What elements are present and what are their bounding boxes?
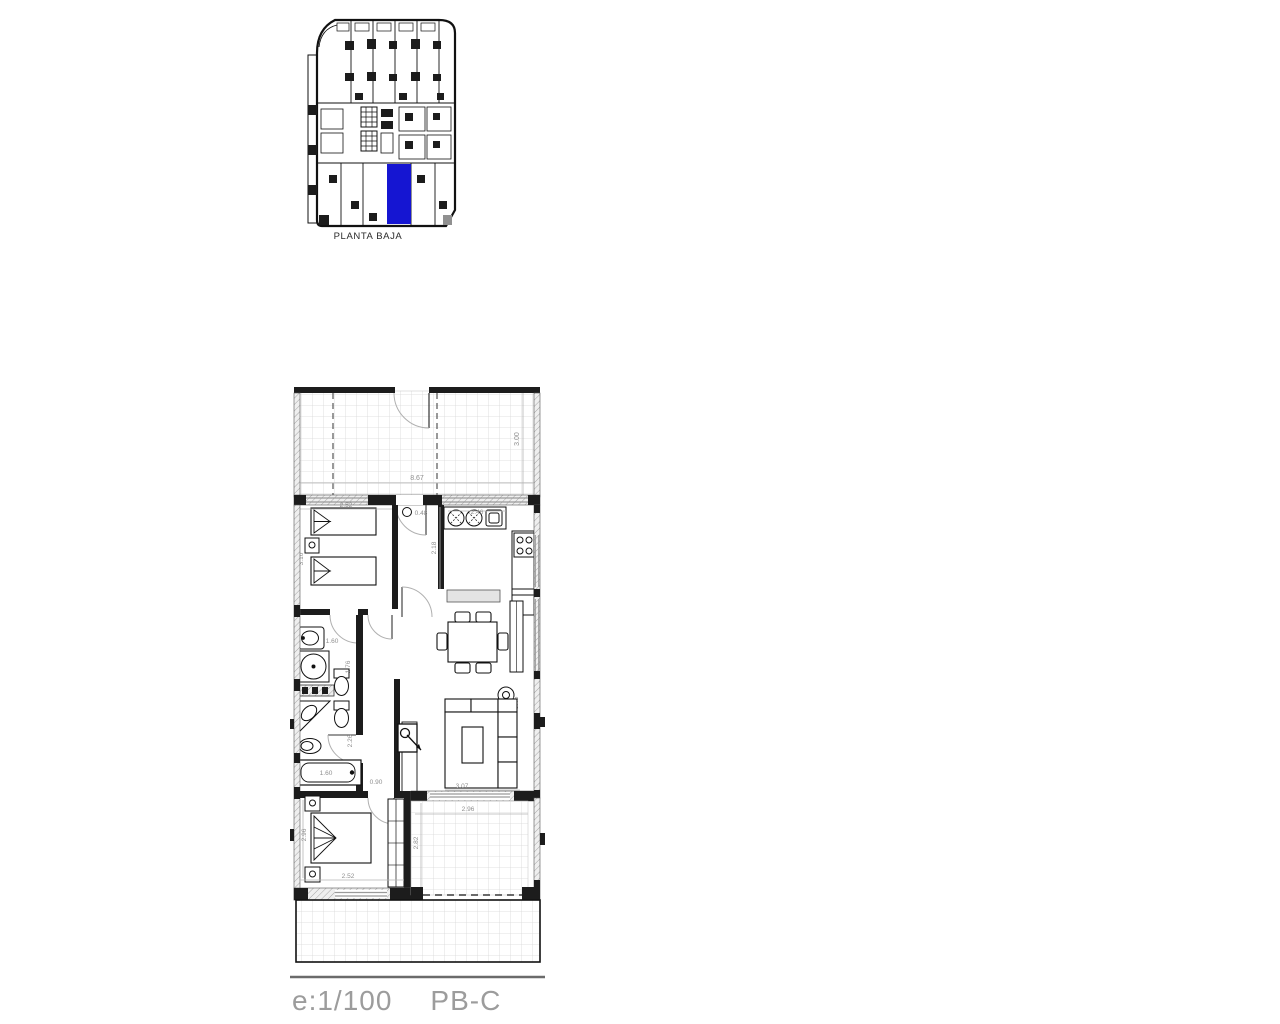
highlighted-unit (387, 164, 411, 224)
dining-table-icon (437, 612, 508, 673)
unit-label: PB-C (430, 985, 501, 1016)
dim-terrace-depth: 3.00 (514, 432, 521, 446)
shower-icon (298, 651, 329, 682)
title-block: e:1/100PB-C (292, 985, 501, 1017)
apartment-floor-plan: 8.67 3.00 0.48 (290, 383, 545, 983)
toilet-icon (334, 701, 349, 728)
twin-beds-icon (311, 508, 376, 585)
floor-plan-page: PLANTA BAJA 8.67 3.00 (0, 0, 1280, 1024)
left-wall (290, 505, 300, 900)
room-bedroom-2: 2.52 2.96 (294, 791, 411, 900)
dim-corridor-width: 0.90 (370, 779, 383, 786)
vanity-sink-icon (298, 627, 324, 649)
bidet-icon (299, 739, 321, 754)
coffee-table-icon (462, 727, 483, 763)
overview-label: PLANTA BAJA (290, 231, 446, 242)
nightstand-icon (305, 538, 319, 553)
dim-living-width: 3.07 (456, 783, 469, 790)
bedroom1-door-swing (368, 615, 392, 639)
dim-terrace2-depth: 2.82 (413, 836, 420, 849)
room-kitchen: 2.46 2.18 (431, 507, 534, 615)
room-bathroom-1: 1.60 1.76 (298, 627, 352, 696)
building-overview (305, 17, 461, 231)
sideboard-icon (510, 601, 523, 672)
corner-sink-icon (298, 701, 330, 733)
room-bedroom-1: 2.52 3.10 (294, 502, 398, 643)
dim-terrace-width: 8.67 (410, 475, 424, 482)
building-entry-block (443, 215, 452, 225)
dim-kitchen-depth: 2.18 (431, 541, 438, 554)
dim-terrace2-width: 2.96 (462, 806, 475, 813)
room-terrace-2: 2.96 2.82 (411, 791, 545, 900)
wardrobe-icon (388, 799, 404, 887)
room-terrace-top: 8.67 3.00 (294, 387, 540, 497)
room-hall (402, 505, 444, 617)
dim-bath1-width: 1.60 (326, 638, 339, 645)
room-terrace-bottom (296, 900, 540, 962)
entry-symbol-icon (403, 508, 412, 517)
dim-bedroom2-depth: 2.96 (301, 828, 308, 841)
scale-label: e:1/100 (292, 985, 392, 1016)
dim-bedroom2-width: 2.52 (342, 873, 355, 880)
double-bed-icon (311, 813, 371, 863)
dim-bathtub: 1.60 (320, 770, 333, 777)
kitchen-peninsula-icon (447, 590, 500, 602)
dim-bath2-depth: 2.26 (347, 734, 354, 747)
tv-icon (398, 724, 421, 752)
dim-bedroom1-width: 2.52 (340, 502, 353, 509)
dim-bath1-depth: 1.76 (345, 660, 352, 673)
dim-kitchen-width: 2.46 (471, 509, 484, 516)
dim-entry: 0.48 (415, 510, 428, 517)
hall-door-swing (402, 587, 432, 617)
